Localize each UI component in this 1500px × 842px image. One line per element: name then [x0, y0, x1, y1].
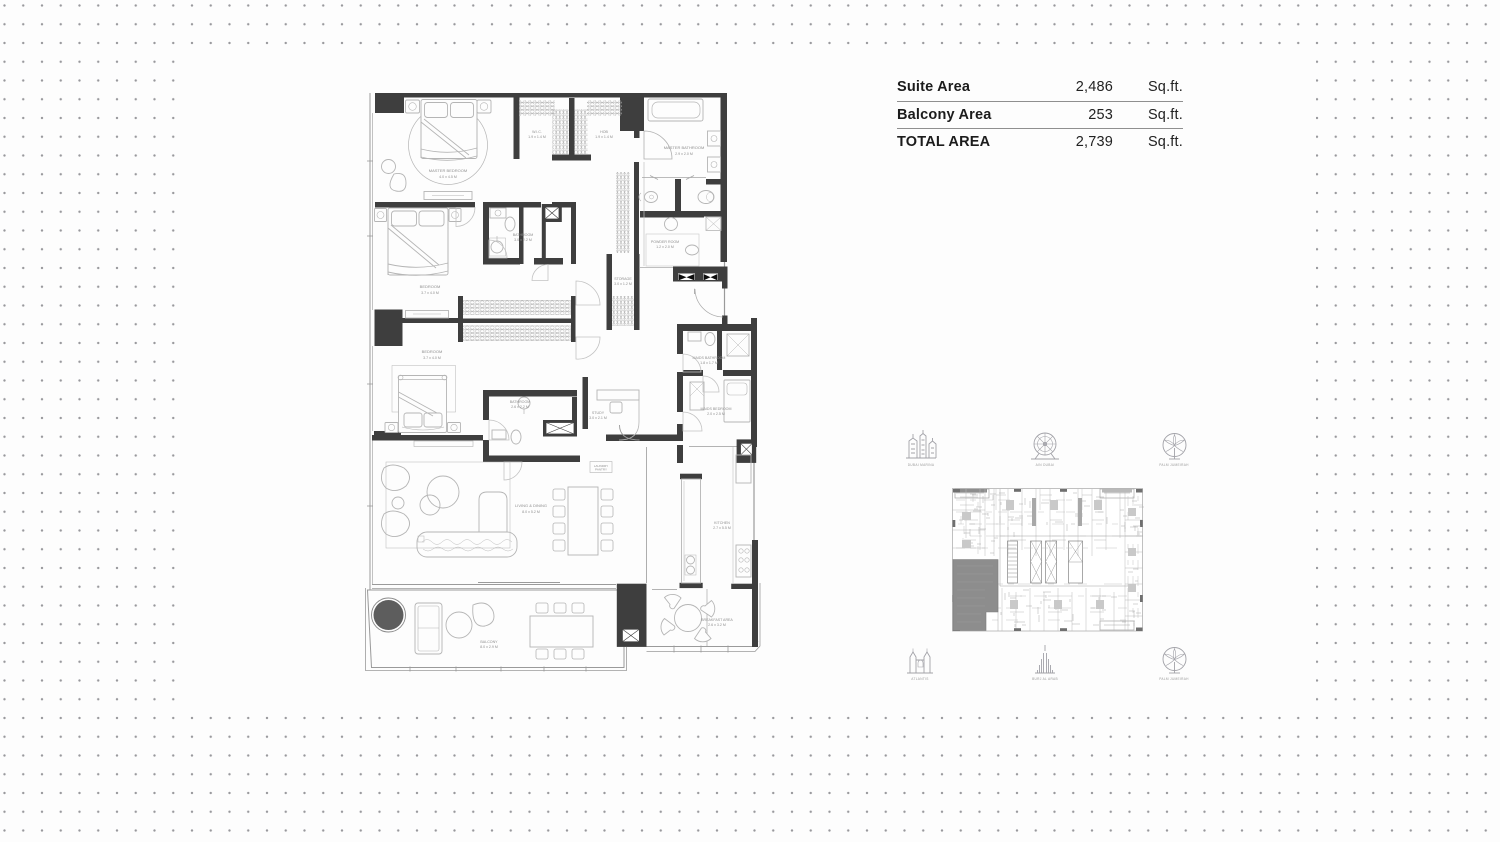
svg-text:BEDROOM: BEDROOM: [422, 349, 443, 354]
svg-text:2.6 x 2.2 M: 2.6 x 2.2 M: [511, 405, 529, 409]
svg-text:3.0 x 1.2 M: 3.0 x 1.2 M: [614, 282, 632, 286]
svg-text:2.6 x 3.2 M: 2.6 x 3.2 M: [708, 623, 726, 627]
svg-text:3.7 x 4.0 M: 3.7 x 4.0 M: [421, 291, 439, 295]
svg-text:3.7 x 4.0 M: 3.7 x 4.0 M: [423, 356, 441, 360]
svg-text:BURJ AL ARAB: BURJ AL ARAB: [1032, 677, 1058, 680]
svg-text:MASTER BEDROOM: MASTER BEDROOM: [429, 168, 467, 173]
svg-text:1.8 x 1.7 M: 1.8 x 1.7 M: [700, 361, 718, 365]
svg-text:KITCHEN: KITCHEN: [714, 521, 730, 525]
svg-text:MASTER BATHROOM: MASTER BATHROOM: [664, 145, 705, 150]
svg-text:W.I.C.: W.I.C.: [532, 130, 542, 134]
svg-text:STORAGE: STORAGE: [614, 277, 632, 281]
svg-text:STUDY: STUDY: [592, 411, 605, 415]
svg-text:1.9 x 1.4 M: 1.9 x 1.4 M: [595, 135, 613, 139]
svg-text:AIN DUBAI: AIN DUBAI: [1036, 463, 1055, 467]
svg-text:3.0 x 2.1 M: 3.0 x 2.1 M: [589, 416, 607, 420]
svg-text:POWDER ROOM: POWDER ROOM: [651, 240, 679, 244]
svg-text:2.0 x 2.5 M: 2.0 x 2.5 M: [707, 412, 725, 416]
svg-text:8.0 x 5.2 M: 8.0 x 5.2 M: [522, 510, 540, 514]
svg-text:BATHROOM: BATHROOM: [510, 400, 531, 404]
svg-text:PANTRY: PANTRY: [595, 468, 607, 472]
svg-text:1.9 x 1.4 M: 1.9 x 1.4 M: [528, 135, 546, 139]
svg-text:PALM JUMEIRAH: PALM JUMEIRAH: [1159, 677, 1189, 680]
svg-text:BREAKFAST AREA: BREAKFAST AREA: [701, 618, 733, 622]
svg-text:LIVING & DINING: LIVING & DINING: [515, 503, 547, 508]
svg-text:3.0 x 2.2 M: 3.0 x 2.2 M: [514, 238, 532, 242]
svg-text:ATLANTIS: ATLANTIS: [911, 677, 928, 680]
svg-text:MAIDS BATHROOM: MAIDS BATHROOM: [693, 356, 726, 360]
svg-text:BEDROOM: BEDROOM: [420, 284, 441, 289]
svg-text:8.0 x 2.9 M: 8.0 x 2.9 M: [480, 645, 498, 649]
svg-text:PALM JUMEIRAH: PALM JUMEIRAH: [1159, 463, 1189, 467]
svg-text:1.2 x 2.0 M: 1.2 x 2.0 M: [656, 245, 674, 249]
svg-text:4.0 x 4.5 M: 4.0 x 4.5 M: [439, 175, 457, 179]
svg-text:DUBAI MARINA: DUBAI MARINA: [908, 463, 935, 467]
svg-text:2.7 x 5.5 M: 2.7 x 5.5 M: [713, 526, 731, 530]
svg-text:MAIDS BEDROOM: MAIDS BEDROOM: [701, 407, 732, 411]
svg-text:BALCONY: BALCONY: [480, 640, 498, 644]
svg-text:BATHROOM: BATHROOM: [513, 233, 534, 237]
svg-text:2.9 x 2.0 M: 2.9 x 2.0 M: [675, 152, 693, 156]
svg-text:HOB: HOB: [600, 130, 608, 134]
